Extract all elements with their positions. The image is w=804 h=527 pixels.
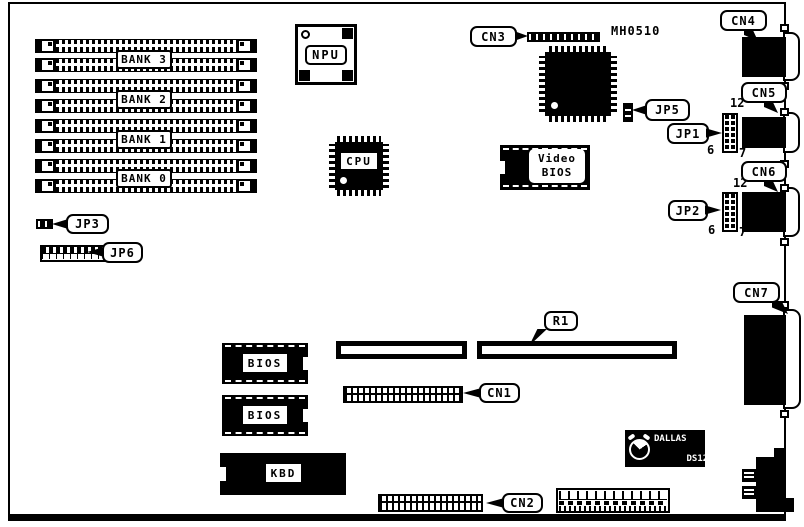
bios-label: BIOS xyxy=(243,354,287,372)
rtc-line2: DS1225 xyxy=(687,454,720,464)
slot-end-bar xyxy=(252,119,257,133)
slot-end-bar xyxy=(252,58,257,72)
chip-notch xyxy=(220,467,226,481)
dip-feet-row xyxy=(559,506,667,511)
cn3-connector xyxy=(527,32,600,42)
cn1-connector xyxy=(343,386,463,403)
npu-label: NPU xyxy=(305,45,347,65)
slot-clip xyxy=(40,99,55,113)
pin-row xyxy=(610,56,617,112)
corner-mark xyxy=(299,70,310,81)
dip-dash-row xyxy=(559,501,667,505)
corner-mark xyxy=(342,28,353,39)
video-bios-line2: BIOS xyxy=(542,166,573,180)
chip-notch xyxy=(500,161,505,174)
r1-callout: R1 xyxy=(544,311,578,331)
screw-hole xyxy=(780,108,789,116)
cn3-callout: CN3 xyxy=(470,26,517,47)
r1-resistor-pack xyxy=(477,341,677,359)
slot-clip xyxy=(237,179,252,193)
slot-clip xyxy=(237,79,252,93)
video-bios-chip: Video BIOS xyxy=(500,145,590,190)
board-bottom-edge xyxy=(8,514,786,521)
jp1-header xyxy=(722,113,738,153)
bank-label-1: BANK 1 xyxy=(116,130,172,149)
cn7-callout: CN7 xyxy=(733,282,780,303)
bios-chip-bottom: BIOS xyxy=(222,395,308,436)
bank-label-0: BANK 0 xyxy=(116,169,172,188)
npu-socket: NPU xyxy=(295,24,357,85)
cn2-connector xyxy=(378,494,483,512)
pin-dashes xyxy=(225,397,305,399)
cn4-callout: CN4 xyxy=(720,10,767,31)
slot-clip xyxy=(237,139,252,153)
part-number-text: MH0510 xyxy=(611,24,660,38)
kbd-label: KBD xyxy=(266,464,301,482)
slot-clip xyxy=(40,139,55,153)
corner-mark xyxy=(342,70,353,81)
pin1-dot xyxy=(340,177,347,184)
cn6-port xyxy=(742,192,786,232)
jp6-callout: JP6 xyxy=(102,242,143,263)
slot-clip xyxy=(40,119,55,133)
din-pin-block xyxy=(742,486,756,499)
jp3-jumper xyxy=(36,219,53,229)
jp2-pin6-label: 6 xyxy=(708,223,715,237)
slot-clip xyxy=(237,159,252,173)
chipset-qfp xyxy=(539,46,617,122)
jp2-callout: JP2 xyxy=(668,200,708,221)
bank-label-3: BANK 3 xyxy=(116,50,172,69)
cpu-label: CPU xyxy=(341,153,377,169)
pin-row xyxy=(337,189,381,196)
slot-end-bar xyxy=(252,99,257,113)
jp2-pin7-label: 7 xyxy=(739,225,746,239)
keyboard-din-connector xyxy=(774,448,786,458)
keyboard-din-connector xyxy=(786,498,794,512)
slot-clip xyxy=(237,58,252,72)
alarm-clock-icon xyxy=(629,439,650,460)
slot-clip xyxy=(40,58,55,72)
motherboard-diagram: BANK 3 BANK 2 BANK 1 BANK 0 NPU CN3 MH05… xyxy=(0,0,804,527)
pin-row xyxy=(549,115,607,122)
pin-dashes xyxy=(225,345,305,347)
pin-dashes xyxy=(503,185,587,187)
rtc-line3: REAL TIME xyxy=(687,474,736,484)
kbd-chip: KBD xyxy=(220,453,346,495)
resistor-pack xyxy=(336,341,467,359)
cn4-port xyxy=(742,37,786,77)
bios-chip-top: BIOS xyxy=(222,343,308,384)
slot-clip xyxy=(40,179,55,193)
slot-end-bar xyxy=(252,139,257,153)
slot-end-bar xyxy=(252,79,257,93)
slot-clip xyxy=(237,39,252,53)
jp5-jumper xyxy=(623,103,633,122)
slot-clip xyxy=(40,159,55,173)
rtc-chip: DALLAS DS1225 REAL TIME xyxy=(625,430,705,467)
slot-clip xyxy=(40,39,55,53)
rtc-line1: DALLAS xyxy=(654,434,687,444)
din-pin-block xyxy=(742,469,756,482)
bios-label: BIOS xyxy=(243,406,287,424)
keyboard-din-connector xyxy=(756,457,786,512)
pin-dashes xyxy=(225,432,305,434)
slot-end-bar xyxy=(252,39,257,53)
dip-pin-row xyxy=(559,491,667,500)
cn2-callout: CN2 xyxy=(502,493,543,513)
video-bios-line1: Video xyxy=(538,152,576,166)
jp2-header xyxy=(722,192,738,232)
pin-row xyxy=(382,144,389,188)
cn5-port xyxy=(742,117,786,148)
jp1-pin7-label: 7 xyxy=(739,146,746,160)
screw-hole xyxy=(780,410,789,418)
video-bios-label: Video BIOS xyxy=(529,149,585,183)
jp3-callout: JP3 xyxy=(66,214,109,234)
slot-end-bar xyxy=(252,159,257,173)
cpu-chip: CPU xyxy=(329,136,389,196)
pin1-dot xyxy=(551,102,558,109)
cn1-callout: CN1 xyxy=(479,383,520,403)
jp1-pin6-label: 6 xyxy=(707,143,714,157)
slot-clip xyxy=(237,119,252,133)
screw-hole xyxy=(780,238,789,246)
pin-dashes xyxy=(225,380,305,382)
cn6-callout: CN6 xyxy=(741,161,787,182)
slot-end-bar xyxy=(252,179,257,193)
slot-clip xyxy=(40,79,55,93)
screw-hole xyxy=(780,184,789,192)
chip-notch xyxy=(303,357,308,370)
jp5-callout: JP5 xyxy=(645,99,690,121)
chip-notch xyxy=(303,409,308,422)
cn5-callout: CN5 xyxy=(741,82,787,103)
rtc-text: DALLAS DS1225 REAL TIME xyxy=(654,434,735,484)
bank-label-2: BANK 2 xyxy=(116,90,172,109)
screw-hole xyxy=(780,24,789,32)
slot-clip xyxy=(237,99,252,113)
pin1-circle xyxy=(301,30,310,39)
jp1-callout: JP1 xyxy=(667,123,709,144)
cn7-port xyxy=(744,315,786,405)
dip-socket xyxy=(556,488,670,513)
